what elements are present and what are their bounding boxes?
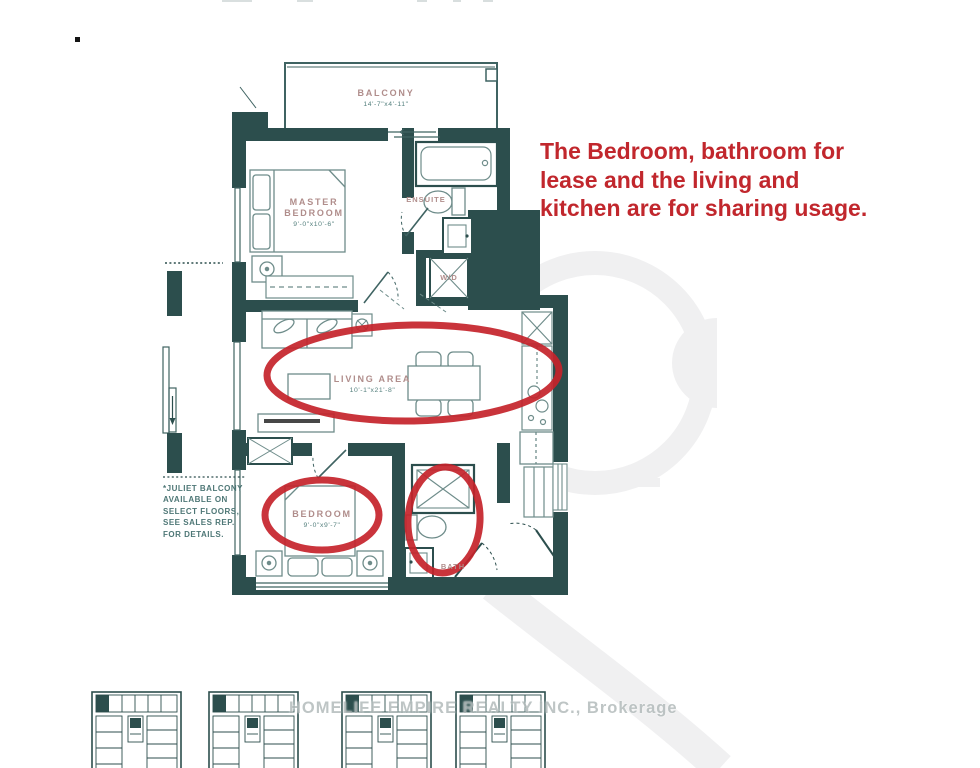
- ensuite-sink: [443, 218, 472, 254]
- pantry: [524, 467, 553, 517]
- crop-artifacts: [222, 0, 493, 2]
- footnote-line-5: FOR DETAILS.: [163, 529, 258, 540]
- stray-dot: [75, 37, 80, 42]
- footnote-line-3: SELECT FLOORS,: [163, 506, 258, 517]
- floorplan-image: BALCONY 14'-7"x4'-11" MASTER BEDROOM 9'-…: [0, 0, 980, 768]
- lease-note-line-1: The Bedroom, bathroom for: [540, 137, 870, 166]
- footnote-line-2: AVAILABLE ON: [163, 494, 258, 505]
- footnote-line-1: *JULIET BALCONY: [163, 483, 258, 494]
- fridge: [520, 432, 553, 464]
- tv-console: [258, 414, 334, 432]
- lease-note-line-3: kitchen are for sharing usage.: [540, 194, 870, 223]
- juliet-balcony-footnote: *JULIET BALCONY AVAILABLE ON SELECT FLOO…: [163, 483, 258, 540]
- master-closet: [266, 276, 353, 298]
- brokerage-watermark: HOMELIFE EMPIRE REALTY INC., Brokerage: [289, 699, 719, 718]
- balcony-outline: [240, 63, 497, 128]
- floor-plan-drawing: [0, 0, 980, 768]
- lease-note: The Bedroom, bathroom for lease and the …: [540, 137, 870, 223]
- bedroom-closet: [248, 438, 292, 464]
- master-bed: [250, 170, 345, 252]
- lease-note-line-2: lease and the living and: [540, 166, 870, 195]
- key-plate-2: [209, 692, 298, 768]
- footnote-line-4: SEE SALES REP.: [163, 517, 258, 528]
- washer-dryer: [430, 258, 468, 298]
- entry-closet: [553, 464, 567, 510]
- coffee-table: [288, 374, 330, 399]
- kitchen-cabinets: [522, 312, 552, 430]
- key-plate-1: [92, 692, 181, 768]
- bathtub: [416, 142, 497, 186]
